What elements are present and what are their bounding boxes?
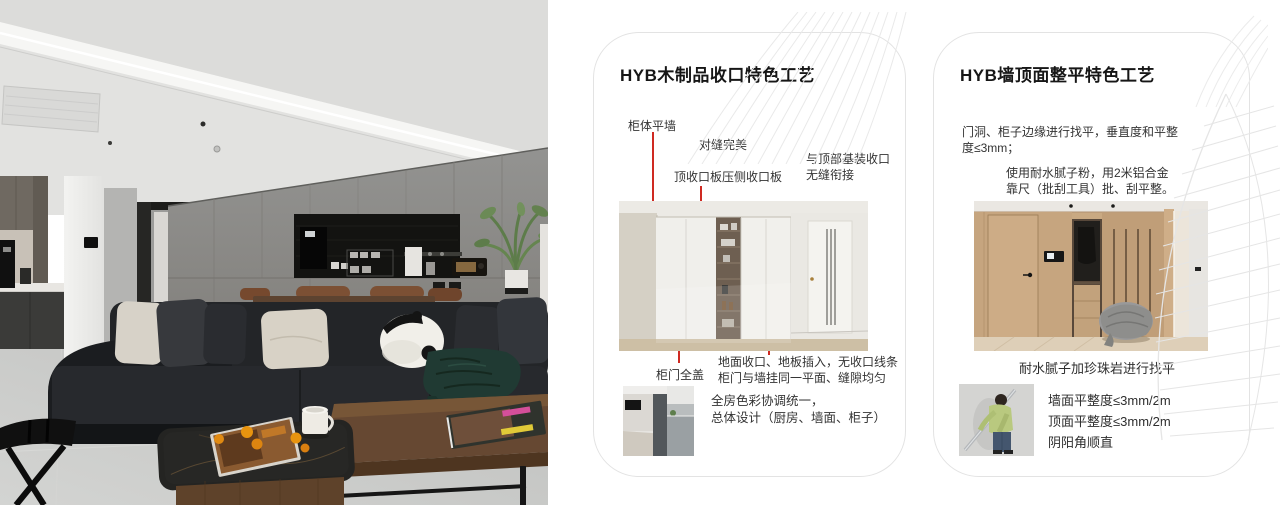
spec-wall-flatness: 墙面平整度≤3mm/2m [1048,390,1171,411]
label-top-joint: 与顶部基装收口 无缝衔接 [806,151,890,183]
label-top-board: 顶收口板压侧收口板 [674,169,782,185]
label-door-full-cover: 柜门全盖 [656,367,704,383]
air-vent [2,86,100,132]
label-floor-joint: 地面收口、地板插入，无收口线条 柜门与墙挂同一平面、缝隙均匀 [718,355,898,386]
downlight [108,141,112,145]
card-wood-finish: HYB木制品收口特色工艺 柜体平墙 对缝完美 顶收口板压侧收口板 与顶部基装收口… [593,32,906,477]
card2-paragraph-2: 使用耐水腻子粉，用2米铝合金 靠尺（批刮工具）批、刮平整。 [1006,166,1174,197]
page: HYB木制品收口特色工艺 柜体平墙 对缝完美 顶收口板压侧收口板 与顶部基装收口… [0,0,1280,505]
spec-ceiling-flatness: 顶面平整度≤3mm/2m [1048,411,1171,432]
label-seam-perfect: 对缝完美 [699,137,747,153]
card1-summary: 全房色彩协调统一， 总体设计（厨房、墙面、柜子） [711,393,886,427]
living-room-photo-art [0,0,548,505]
hallway-photo [974,201,1208,351]
wall-socket [449,282,461,289]
downlight [201,122,206,127]
interior-thumbnail [623,386,694,456]
cabinet-render-image [619,201,868,351]
wall-socket [433,282,445,289]
ceiling-sensor [214,146,220,152]
card2-paragraph-1: 门洞、柜子边缘进行找平，垂直度和平整 度≤3mm； [962,125,1178,156]
card2-title: HYB墙顶面整平特色工艺 [960,61,1155,86]
worker-thumbnail [959,384,1034,456]
card1-title: HYB木制品收口特色工艺 [620,61,815,86]
spec-corners: 阴阳角顺直 [1048,432,1171,453]
card2-specs: 墙面平整度≤3mm/2m 顶面平整度≤3mm/2m 阴阳角顺直 [1048,390,1171,453]
coffee-niche [294,214,487,278]
light-switch [84,237,98,248]
living-room-photo [0,0,548,505]
card-wall-leveling: HYB墙顶面整平特色工艺 门洞、柜子边缘进行找平，垂直度和平整 度≤3mm； 使… [933,32,1250,477]
card2-caption: 耐水腻子加珍珠岩进行找平 [1019,358,1175,377]
capsule-machine [405,247,422,276]
